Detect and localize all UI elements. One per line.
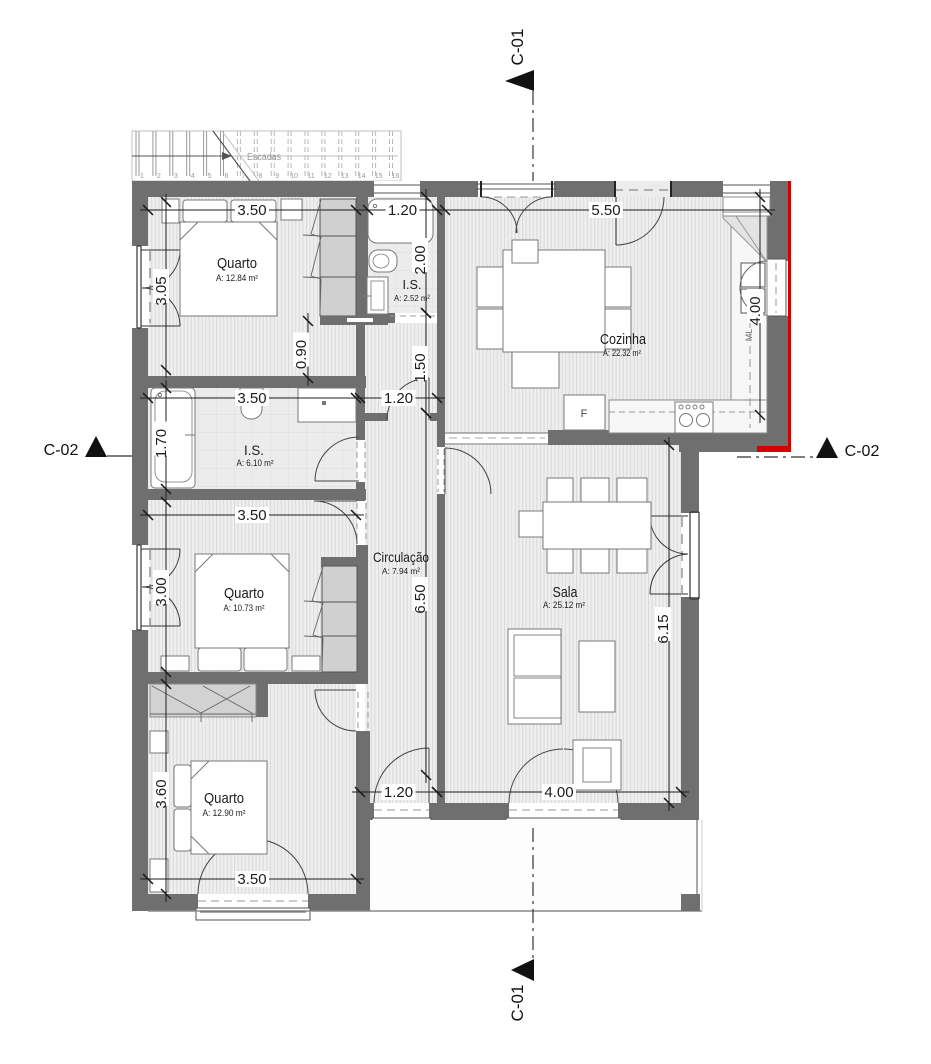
- svg-text:A: 25.12 m²: A: 25.12 m²: [543, 600, 585, 610]
- svg-text:6.15: 6.15: [655, 614, 672, 643]
- svg-text:ML: ML: [744, 329, 754, 342]
- svg-text:Escadas: Escadas: [247, 152, 281, 163]
- svg-text:C-01: C-01: [508, 985, 527, 1022]
- svg-text:11: 11: [307, 173, 314, 180]
- svg-text:4.00: 4.00: [747, 296, 764, 325]
- svg-text:3.50: 3.50: [237, 390, 266, 407]
- svg-text:F: F: [581, 408, 588, 420]
- svg-text:5.50: 5.50: [591, 202, 620, 219]
- svg-text:12: 12: [324, 173, 332, 180]
- svg-text:9: 9: [275, 173, 279, 180]
- svg-text:A: 6.10 m²: A: 6.10 m²: [237, 458, 274, 468]
- svg-text:3.50: 3.50: [237, 202, 266, 219]
- svg-text:A: 12.90 m²: A: 12.90 m²: [203, 808, 246, 818]
- svg-text:Quarto: Quarto: [224, 585, 264, 602]
- svg-text:14: 14: [358, 173, 366, 180]
- svg-text:15: 15: [375, 173, 383, 180]
- svg-text:7: 7: [241, 173, 245, 180]
- svg-text:3: 3: [174, 173, 178, 180]
- svg-text:A: 7.94 m²: A: 7.94 m²: [382, 566, 420, 576]
- svg-text:Sala: Sala: [553, 584, 579, 601]
- svg-text:1.20: 1.20: [388, 202, 417, 219]
- svg-text:C-01: C-01: [508, 29, 527, 66]
- svg-text:1.20: 1.20: [384, 784, 413, 801]
- svg-text:A: 12.84 m²: A: 12.84 m²: [216, 273, 258, 283]
- svg-text:4: 4: [191, 173, 195, 180]
- svg-text:C-02: C-02: [44, 442, 79, 459]
- svg-text:2: 2: [157, 173, 161, 180]
- svg-text:1.50: 1.50: [412, 353, 429, 382]
- svg-text:1: 1: [140, 173, 144, 180]
- svg-text:A: 2.52 m²: A: 2.52 m²: [394, 293, 430, 303]
- svg-text:0.90: 0.90: [293, 340, 310, 369]
- svg-text:3.50: 3.50: [237, 871, 266, 888]
- svg-text:I.S.: I.S.: [244, 442, 264, 458]
- svg-text:A: 22.32 m²: A: 22.32 m²: [603, 348, 641, 358]
- svg-text:3.60: 3.60: [153, 779, 170, 808]
- svg-text:6.50: 6.50: [412, 584, 429, 613]
- svg-text:Cozinha: Cozinha: [600, 331, 647, 348]
- svg-text:1.70: 1.70: [153, 429, 170, 458]
- svg-text:C-02: C-02: [845, 443, 880, 460]
- svg-text:5: 5: [208, 173, 212, 180]
- svg-text:13: 13: [341, 173, 349, 180]
- svg-text:Circulação: Circulação: [373, 549, 429, 565]
- svg-text:A: 10.73 m²: A: 10.73 m²: [224, 603, 265, 613]
- svg-text:4.00: 4.00: [544, 784, 573, 801]
- svg-text:I.S.: I.S.: [403, 277, 422, 292]
- svg-text:8: 8: [258, 173, 262, 180]
- svg-text:1.20: 1.20: [384, 390, 413, 407]
- svg-text:3.00: 3.00: [153, 577, 170, 606]
- svg-text:Quarto: Quarto: [204, 790, 244, 807]
- svg-text:3.50: 3.50: [237, 507, 266, 524]
- svg-text:Quarto: Quarto: [217, 255, 257, 272]
- svg-text:3.05: 3.05: [153, 276, 170, 305]
- svg-text:10: 10: [290, 173, 298, 180]
- svg-text:2.00: 2.00: [412, 245, 429, 274]
- svg-text:16: 16: [392, 173, 400, 180]
- svg-text:6: 6: [225, 173, 229, 180]
